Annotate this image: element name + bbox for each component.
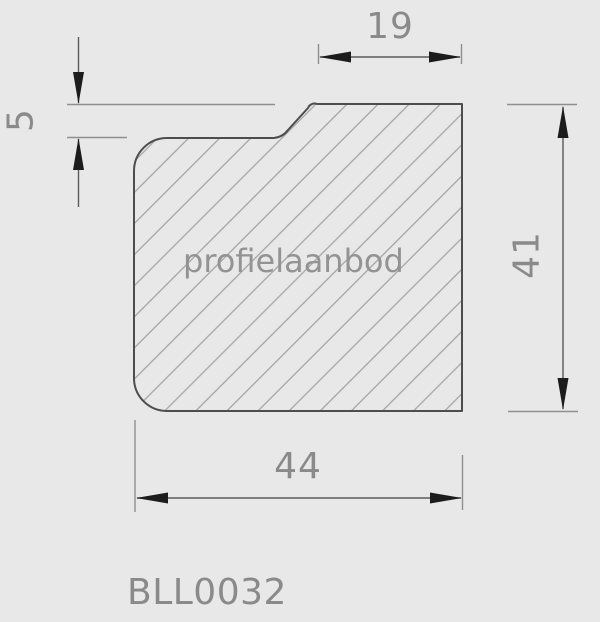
dimension-value-top-width: 19: [366, 6, 414, 47]
dimension-value-overall-width: 44: [274, 446, 322, 487]
profile-drawing-canvas: profielaanbod 19 5 41: [0, 0, 600, 622]
dimension-value-rebate-height: 5: [1, 108, 42, 132]
dimension-value-overall-height: 41: [507, 231, 548, 279]
product-code-label: BLL0032: [127, 572, 287, 613]
watermark-label: profielaanbod: [183, 242, 404, 280]
technical-drawing: profielaanbod 19 5 41: [0, 0, 600, 622]
